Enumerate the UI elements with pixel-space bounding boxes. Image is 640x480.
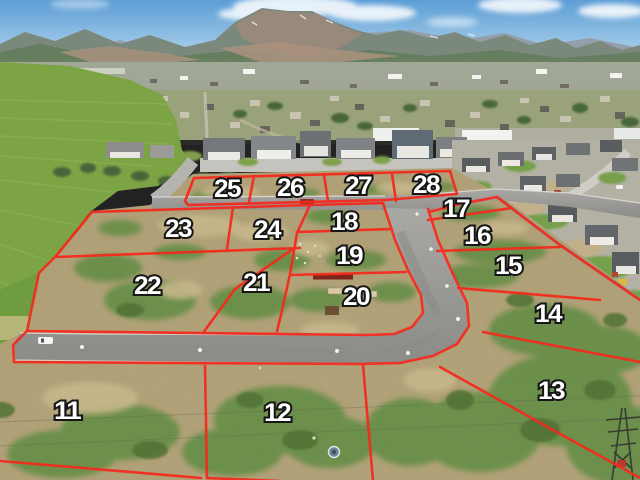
lot-label-18: 18 [331,208,359,236]
white-car [616,185,623,189]
lot-label-12: 12 [264,399,291,427]
lot-label-16: 16 [464,222,491,250]
aerial-photo: 111213141516171819202122232425262728 [0,0,640,480]
lot-label-20: 20 [343,283,370,311]
lot-label-21: 21 [243,269,271,297]
white-car-on-road [38,337,53,344]
lot-label-13: 13 [538,377,565,405]
lot-label-14: 14 [535,300,563,328]
aerial-photo-canvas: 111213141516171819202122232425262728 [0,0,640,480]
lot-label-19: 19 [336,242,363,270]
lot-label-25: 25 [214,175,242,203]
lot-label-22: 22 [134,272,161,300]
lot-label-11: 11 [54,397,82,425]
lot-label-23: 23 [165,215,192,243]
lot-label-17: 17 [443,195,470,223]
lot-label-28: 28 [413,171,441,199]
lot-label-26: 26 [277,174,304,202]
lot-label-24: 24 [254,216,282,244]
lot-label-27: 27 [345,172,372,200]
lot-label-15: 15 [495,252,523,280]
